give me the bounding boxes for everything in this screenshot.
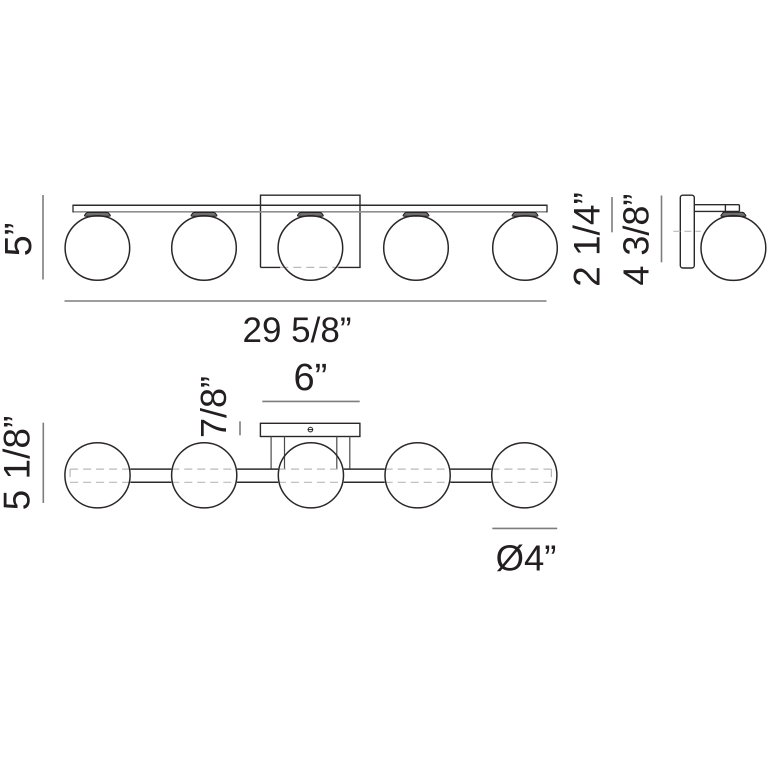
svg-text:2 1/4”: 2 1/4” xyxy=(567,192,608,287)
svg-text:5”: 5” xyxy=(0,223,40,257)
svg-text:4 3/8”: 4 3/8” xyxy=(615,194,656,286)
svg-text:29 5/8”: 29 5/8” xyxy=(243,311,352,350)
svg-text:Ø4”: Ø4” xyxy=(496,538,557,579)
svg-text:6”: 6” xyxy=(294,357,328,399)
svg-text:7/8”: 7/8” xyxy=(193,376,234,438)
svg-text:5 1/8”: 5 1/8” xyxy=(0,416,38,511)
